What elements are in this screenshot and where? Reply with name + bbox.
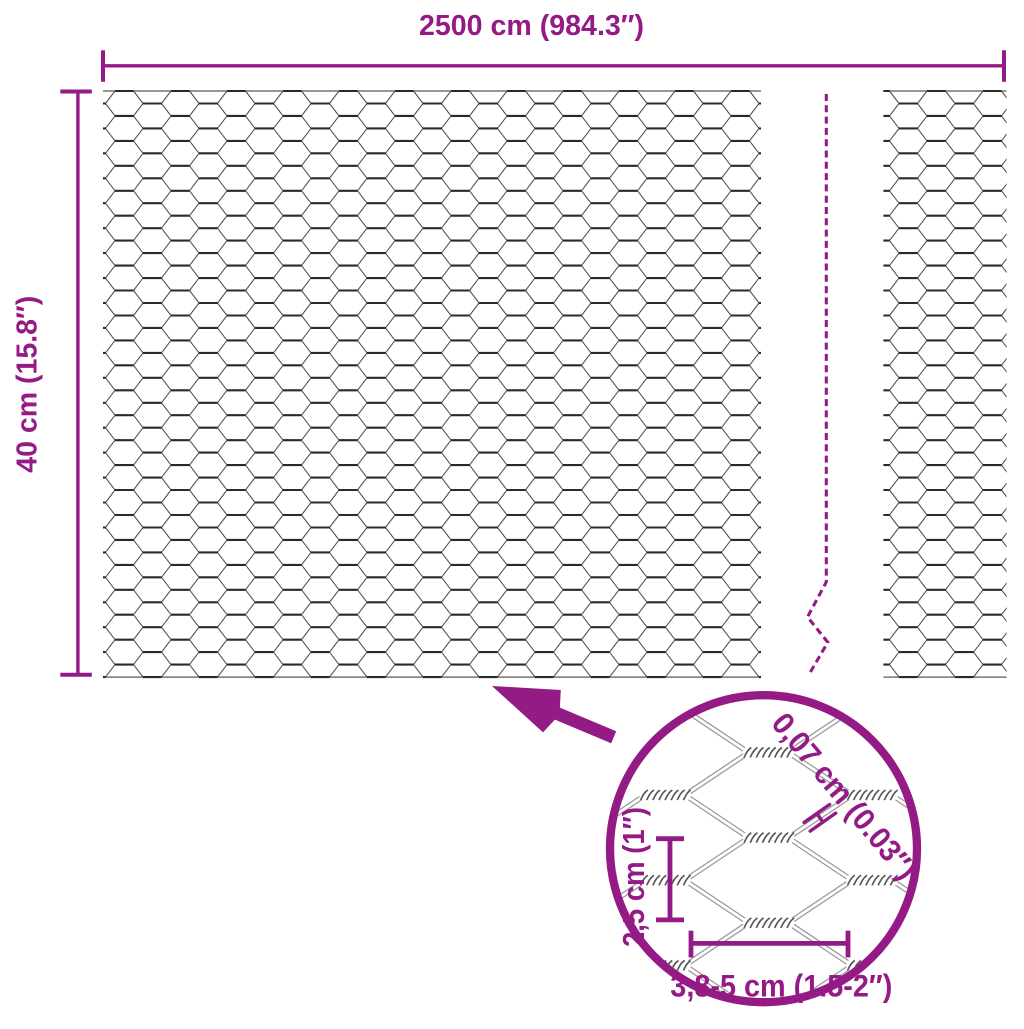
- svg-text:3,8-5 cm (1.5-2″): 3,8-5 cm (1.5-2″): [670, 967, 892, 1003]
- svg-text:2,5 cm (1″): 2,5 cm (1″): [616, 807, 651, 947]
- svg-text:2500 cm (984.3″): 2500 cm (984.3″): [419, 10, 644, 42]
- svg-text:40 cm (15.8″): 40 cm (15.8″): [12, 296, 44, 473]
